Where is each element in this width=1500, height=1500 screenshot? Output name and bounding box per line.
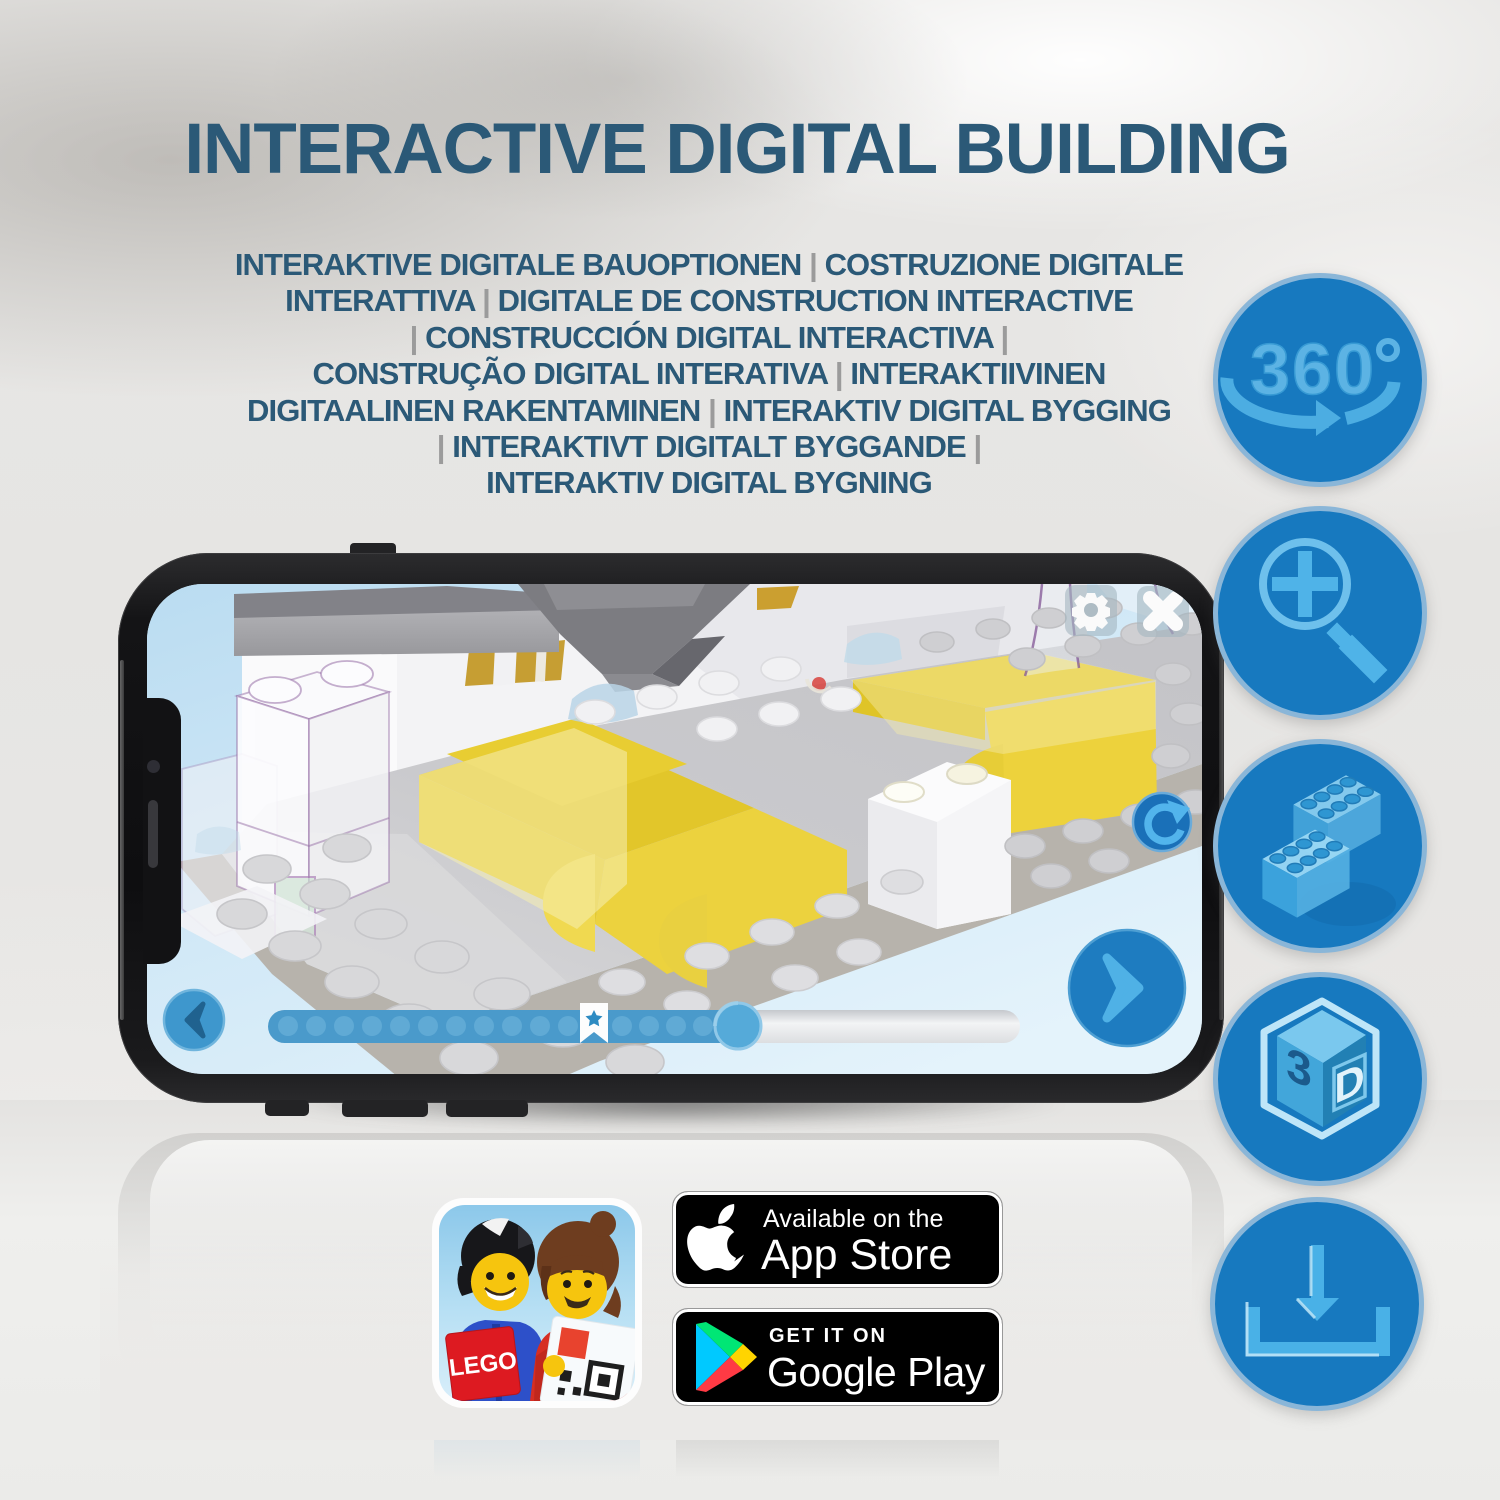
svg-text:Available on the: Available on the [763, 1205, 944, 1233]
svg-text:3: 3 [1286, 1038, 1312, 1099]
svg-text:GET IT ON: GET IT ON [769, 1325, 887, 1347]
svg-text:Google Play: Google Play [767, 1349, 986, 1395]
svg-text:App Store: App Store [761, 1231, 952, 1279]
svg-text:360: 360 [1250, 330, 1376, 410]
